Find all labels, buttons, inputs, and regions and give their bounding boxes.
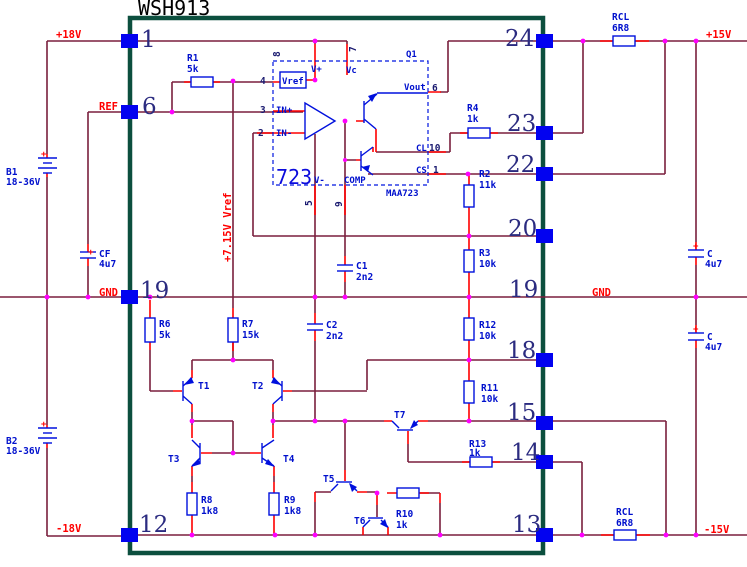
resistor-value: 6R8 xyxy=(612,23,629,34)
net-label-minus15v: -15V xyxy=(704,524,730,536)
capacitor-value: 4u7 xyxy=(99,259,116,270)
opamp-symbol xyxy=(305,103,335,139)
ic-part-number: MAA723 xyxy=(386,189,419,199)
pin-number: 14 xyxy=(511,440,540,466)
resistor-value: 10k xyxy=(479,331,496,342)
pin-number: 15 xyxy=(507,400,536,426)
resistor-name: R8 xyxy=(201,495,213,506)
ic-vref-label: Vref xyxy=(282,77,304,87)
resistor-value: 5k xyxy=(159,330,171,341)
net-label-gnd-right: GND xyxy=(592,287,611,299)
resistor-value: 11k xyxy=(479,180,496,191)
capacitor-value: 2n2 xyxy=(356,272,373,283)
battery-value: 18-36V xyxy=(6,446,41,457)
net-label-plus15v: +15V xyxy=(706,29,732,41)
ic-pin-name-cs: CS xyxy=(416,166,427,176)
transistor-name: T2 xyxy=(252,381,263,392)
ic-723[interactable]: Q1 MAA723 723 Vref V+ Vc Vout CL CS xyxy=(258,46,441,207)
pin-number: 24 xyxy=(505,26,534,52)
battery-B1[interactable]: + B1 18-36V xyxy=(6,150,57,188)
pin-number: 19 xyxy=(140,278,169,304)
pin-number: 12 xyxy=(139,512,168,538)
ic-pin-6: 6 xyxy=(432,83,438,94)
resistor-name: R11 xyxy=(481,383,498,394)
resistor-R10[interactable]: R10 1k xyxy=(396,488,419,531)
capacitor-C2[interactable]: C2 2n2 xyxy=(307,320,343,342)
net-label-plus18v: +18V xyxy=(56,29,82,41)
module-title: WSH913 xyxy=(138,0,210,20)
resistor-R4[interactable]: R4 1k xyxy=(467,103,490,138)
pin-number: 1 xyxy=(141,27,156,53)
ic-pin-5: 5 xyxy=(304,200,315,206)
ic-designator: Q1 xyxy=(406,50,417,60)
transistor-name: T3 xyxy=(168,454,180,465)
frame-pin-6[interactable]: 6 xyxy=(121,94,157,120)
ic-pin-3: 3 xyxy=(260,105,266,116)
resistor-name: R6 xyxy=(159,319,171,330)
transistor-name: T6 xyxy=(354,516,366,527)
resistor-value: 10k xyxy=(479,259,496,270)
ic-big-label: 723 xyxy=(276,165,312,189)
transistor-name: T5 xyxy=(323,474,335,485)
transistor-name: T1 xyxy=(198,381,210,392)
transistor-T1[interactable]: T1 xyxy=(183,377,210,404)
frame-pin-18[interactable]: 18 xyxy=(507,338,553,367)
resistor-name: R10 xyxy=(396,509,413,520)
polarity-plus-icon: + xyxy=(41,420,47,430)
resistor-name: R1 xyxy=(187,53,199,64)
resistor-value: 1k8 xyxy=(201,506,218,517)
frame-pin-23[interactable]: 23 xyxy=(507,111,553,140)
resistor-R11[interactable]: R11 10k xyxy=(464,381,498,405)
ic-pin-name-vout: Vout xyxy=(404,83,426,93)
ic-pin-name-comp: COMP xyxy=(344,176,366,186)
transistor-name: T4 xyxy=(283,454,295,465)
polarity-plus-icon: + xyxy=(693,325,699,335)
net-label-ref: REF xyxy=(99,101,118,113)
resistor-value: 15k xyxy=(242,330,259,341)
frame-pin-13[interactable]: 13 xyxy=(512,512,553,542)
capacitor-CF[interactable]: + CF 4u7 xyxy=(80,248,116,270)
transistor-T6[interactable]: T6 xyxy=(354,516,388,528)
net-label-minus18v: -18V xyxy=(56,523,82,535)
frame-pin-14[interactable]: 14 xyxy=(511,440,553,469)
transistor-name: T7 xyxy=(394,410,405,421)
resistor-R1[interactable]: R1 5k xyxy=(187,53,213,87)
ic-limit-transistor xyxy=(361,147,373,175)
resistor-name: RCL xyxy=(612,12,629,23)
resistor-name: R12 xyxy=(479,320,496,331)
transistor-T2[interactable]: T2 xyxy=(252,377,282,404)
resistor-R6[interactable]: R6 5k xyxy=(145,318,171,342)
resistor-value: 1k xyxy=(396,520,408,531)
capacitor-C1[interactable]: C1 2n2 xyxy=(337,261,373,283)
resistor-R7[interactable]: R7 15k xyxy=(228,318,259,342)
resistor-name: RCL xyxy=(616,507,633,518)
ic-pin-4: 4 xyxy=(260,76,266,87)
resistor-value: 6R8 xyxy=(616,518,633,529)
resistor-name: R7 xyxy=(242,319,253,330)
resistor-RCL-top[interactable]: RCL 6R8 xyxy=(612,12,635,46)
capacitor-name: C2 xyxy=(326,320,337,331)
transistor-T4[interactable]: T4 xyxy=(262,440,295,467)
frame-pin-19-right[interactable]: 19 xyxy=(509,277,538,303)
transistor-T7[interactable]: T7 xyxy=(392,410,418,430)
frame-pin-20[interactable]: 20 xyxy=(508,216,553,243)
ic-pin-1: 1 xyxy=(433,165,439,176)
resistor-name: R4 xyxy=(467,103,479,114)
ic-pin-8: 8 xyxy=(272,51,283,57)
pin-number: 22 xyxy=(506,152,535,178)
frame-pin-22[interactable]: 22 xyxy=(506,152,553,181)
ic-output-transistor xyxy=(364,93,428,129)
resistor-value: 1k xyxy=(469,448,481,459)
pin-number: 18 xyxy=(507,338,536,364)
ic-pin-name-vplus: V+ xyxy=(311,65,322,75)
pin-number: 23 xyxy=(507,111,536,137)
resistor-RCL-bottom[interactable]: RCL 6R8 xyxy=(614,507,636,540)
resistor-value: 5k xyxy=(187,64,199,75)
schematic-canvas: WSH913 Q1 MAA723 723 Vref xyxy=(0,0,747,567)
net-label-gnd-left: GND xyxy=(99,287,118,299)
schematic-page: WSH913 Q1 MAA723 723 Vref xyxy=(0,0,747,567)
net-label-vref-rail: +7.15V Vref xyxy=(222,192,234,262)
ic-pin-name-cl: CL xyxy=(416,144,427,154)
ic-pin-10: 10 xyxy=(429,143,441,154)
ic-pin-name-vminus: V- xyxy=(314,176,325,186)
transistor-T5[interactable]: T5 xyxy=(323,474,357,492)
pin-number: 6 xyxy=(142,94,157,120)
capacitor-value: 2n2 xyxy=(326,331,343,342)
transistor-T3[interactable]: T3 xyxy=(168,440,201,467)
resistor-value: 10k xyxy=(481,394,498,405)
ic-pin-name-inn: IN- xyxy=(276,129,292,139)
capacitor-name: C1 xyxy=(356,261,368,272)
resistor-R13[interactable]: R13 1k xyxy=(469,439,492,467)
polarity-plus-icon: + xyxy=(693,242,699,252)
frame-pin-1[interactable]: 1 xyxy=(121,27,156,53)
ic-vref-block: Vref xyxy=(280,72,306,88)
resistor-name: R9 xyxy=(284,495,296,506)
resistor-value: 1k8 xyxy=(284,506,301,517)
capacitor-value: 4u7 xyxy=(705,259,722,270)
pin-number: 13 xyxy=(512,512,541,538)
pin-number: 19 xyxy=(509,277,538,303)
ic-pin-name-vc: Vc xyxy=(346,66,357,76)
resistor-R8[interactable]: R8 1k8 xyxy=(187,493,218,517)
resistor-name: R2 xyxy=(479,169,490,180)
ic-pin-9: 9 xyxy=(334,201,345,207)
ic-pin-2: 2 xyxy=(258,128,264,139)
battery-B2[interactable]: + B2 18-36V xyxy=(6,420,57,457)
capacitor-C-top[interactable]: + C 4u7 xyxy=(688,242,722,270)
battery-value: 18-36V xyxy=(6,177,41,188)
resistor-name: R3 xyxy=(479,248,491,259)
polarity-plus-icon: + xyxy=(88,248,94,258)
resistor-R3[interactable]: R3 10k xyxy=(464,248,496,272)
capacitor-value: 4u7 xyxy=(705,342,722,353)
pin-number: 20 xyxy=(508,216,537,242)
resistor-value: 1k xyxy=(467,114,479,125)
resistor-R9[interactable]: R9 1k8 xyxy=(269,493,301,517)
frame-pin-15[interactable]: 15 xyxy=(507,400,553,430)
frame-pin-24[interactable]: 24 xyxy=(505,26,553,52)
polarity-plus-icon: + xyxy=(41,150,47,160)
resistor-R12[interactable]: R12 10k xyxy=(464,318,496,342)
capacitor-C-bottom[interactable]: + C 4u7 xyxy=(688,325,722,353)
ic-pin-name-inp: IN+ xyxy=(276,106,293,116)
ic-pin-7: 7 xyxy=(348,46,359,52)
